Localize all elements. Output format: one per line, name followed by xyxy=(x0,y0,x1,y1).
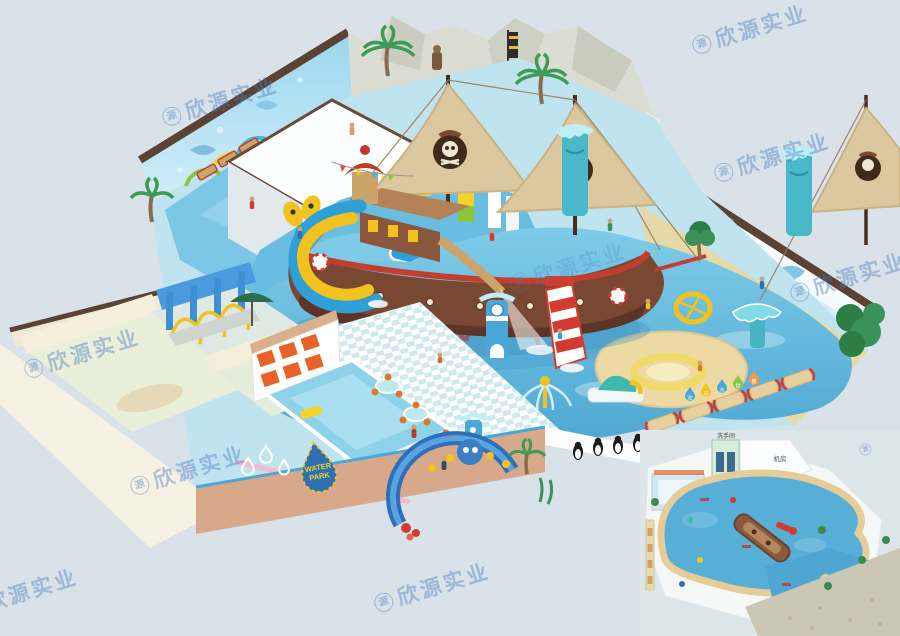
pennant-char: 欢 xyxy=(687,394,693,402)
pennant-char: 界 xyxy=(751,379,757,386)
floor-plan-inset: 洗手间 机房 xyxy=(640,430,900,636)
penguin xyxy=(613,436,623,454)
hedge xyxy=(836,303,885,357)
crow-nest-tower xyxy=(780,146,818,236)
plan-machine-room-label: 机房 xyxy=(774,454,787,463)
water-park-render: WATER PARK xyxy=(0,0,900,636)
pennant-char: 乐 xyxy=(703,391,709,398)
pennant-char: 水 xyxy=(719,386,725,394)
life-ring xyxy=(312,254,328,270)
life-ring xyxy=(610,288,626,304)
seaweed xyxy=(540,478,552,504)
pirate-statue xyxy=(432,45,442,70)
plan-bench-strip xyxy=(646,520,654,590)
pennant-char: 世 xyxy=(735,382,741,390)
scene-canvas: WATER PARK xyxy=(0,0,900,636)
octopus-head xyxy=(457,439,483,465)
sail-aft xyxy=(812,108,900,212)
plan-restroom-label: 洗手间 xyxy=(717,432,735,440)
